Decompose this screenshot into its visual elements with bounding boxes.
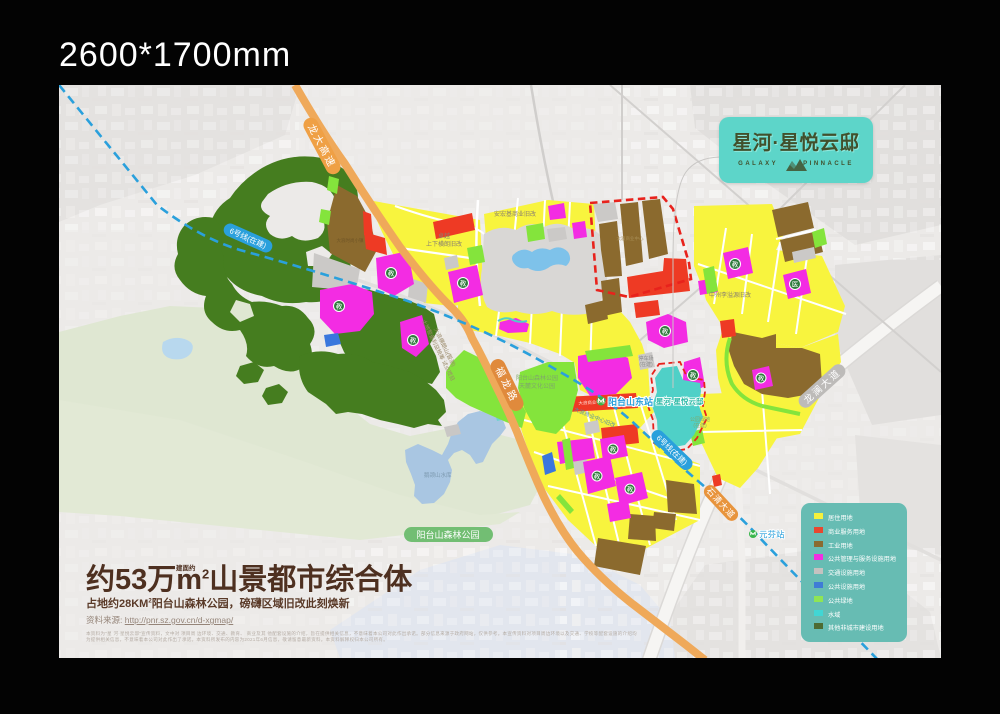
svg-text:阳台山森林公园: 阳台山森林公园	[416, 529, 479, 540]
svg-text:教: 教	[388, 269, 395, 278]
svg-text:星河·星悦云邸: 星河·星悦云邸	[656, 396, 704, 406]
svg-text:上下横朗旧改: 上下横朗旧改	[426, 240, 462, 248]
svg-text:鹅颈山水库: 鹅颈山水库	[424, 471, 452, 479]
svg-text:教: 教	[732, 260, 739, 269]
svg-text:中州李溢源旧改: 中州李溢源旧改	[709, 291, 751, 299]
svg-text:教: 教	[610, 445, 617, 454]
svg-text:天麓文化公园: 天麓文化公园	[519, 382, 555, 390]
svg-text:教: 教	[627, 485, 634, 494]
svg-text:(在建): (在建)	[639, 361, 653, 368]
svg-text:教: 教	[410, 336, 417, 345]
svg-text:教: 教	[594, 472, 601, 481]
svg-text:(在建): (在建)	[693, 422, 707, 429]
svg-text:大浪商业中心: 大浪商业中心	[617, 235, 644, 242]
svg-text:大浪时尚小镇: 大浪时尚小镇	[337, 237, 364, 244]
svg-text:停车场: 停车场	[638, 355, 653, 362]
svg-text:教: 教	[336, 302, 343, 311]
svg-text:元芬站: 元芬站	[759, 530, 785, 540]
svg-text:公园绿地: 公园绿地	[690, 416, 710, 423]
svg-text:卓越: 卓越	[438, 232, 450, 240]
svg-text:教: 教	[662, 327, 669, 336]
svg-text:阳台山森林公园: 阳台山森林公园	[516, 374, 558, 382]
svg-text:阳台山东站: 阳台山东站	[608, 396, 653, 407]
svg-text:安宏基商业旧改: 安宏基商业旧改	[494, 210, 536, 218]
svg-text:教: 教	[690, 371, 697, 380]
svg-text:教: 教	[460, 279, 467, 288]
svg-text:教: 教	[758, 374, 765, 383]
svg-text:医: 医	[792, 281, 799, 289]
